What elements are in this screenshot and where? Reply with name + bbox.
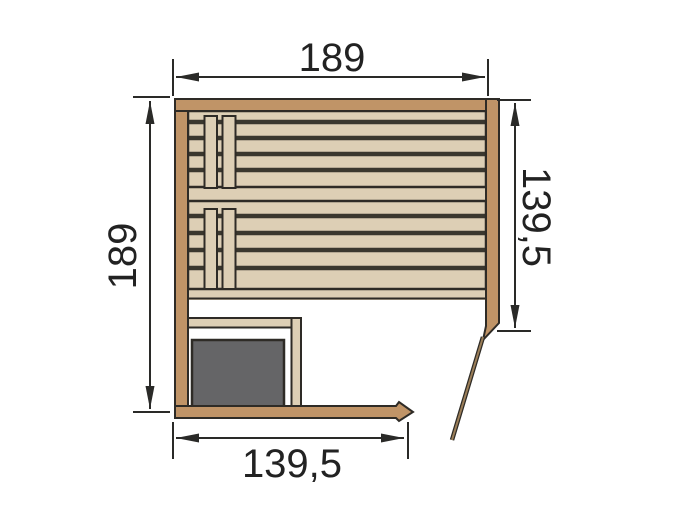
arrowhead-right xyxy=(381,434,404,443)
wall-left xyxy=(175,99,188,418)
bench-support-board xyxy=(205,209,218,289)
heater-area xyxy=(188,318,301,408)
wall-top xyxy=(175,99,499,111)
heater-guard-horizontal xyxy=(188,318,301,328)
heater-guard-vertical xyxy=(292,318,302,408)
dimension-bottom: 139,5 xyxy=(173,422,408,486)
heater xyxy=(192,340,284,408)
arrowhead-down xyxy=(511,305,520,328)
wall-right xyxy=(483,99,499,340)
dimension-label-right: 139,5 xyxy=(514,167,558,267)
dimension-label-left: 189 xyxy=(101,223,145,290)
floor-plan-drawing: 189 189 139,5 139,5 xyxy=(0,0,700,525)
door-leaf xyxy=(452,337,483,440)
arrowhead-left xyxy=(176,73,199,82)
arrowhead-down xyxy=(146,386,155,409)
arrowhead-up xyxy=(511,103,520,126)
bench-support-board xyxy=(223,209,236,289)
dimension-left: 189 xyxy=(101,97,170,412)
dimension-label-top: 189 xyxy=(299,36,366,80)
bench-support-board xyxy=(205,116,218,188)
bench-support-board xyxy=(223,116,236,188)
dimension-top: 189 xyxy=(173,36,488,96)
arrowhead-right xyxy=(462,73,485,82)
dimension-label-bottom: 139,5 xyxy=(242,442,342,486)
sauna-floor-plan: 189 189 139,5 139,5 xyxy=(0,0,700,525)
arrowhead-up xyxy=(146,101,155,124)
door xyxy=(452,337,483,440)
dimension-right: 139,5 xyxy=(497,100,558,331)
bench-area xyxy=(188,111,486,300)
arrowhead-left xyxy=(176,434,199,443)
